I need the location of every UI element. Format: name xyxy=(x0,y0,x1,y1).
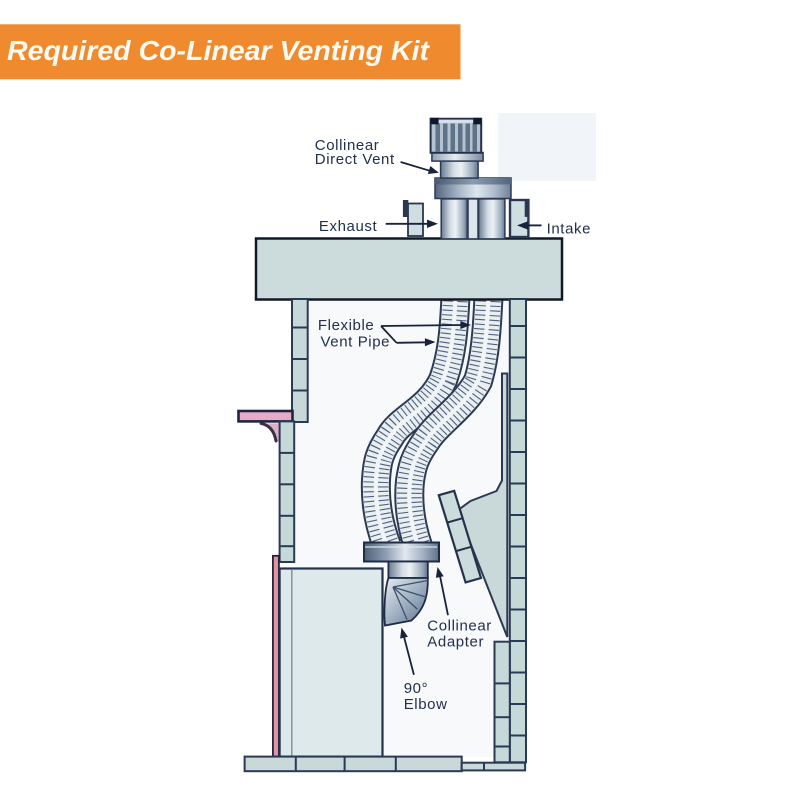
svg-text:Adapter: Adapter xyxy=(427,634,484,651)
svg-text:Collinear: Collinear xyxy=(427,618,492,635)
svg-text:Direct Vent: Direct Vent xyxy=(315,151,395,168)
svg-text:Required Co-Linear Venting Kit: Required Co-Linear Venting Kit xyxy=(7,35,431,66)
svg-text:90°: 90° xyxy=(404,680,428,697)
svg-text:Exhaust: Exhaust xyxy=(319,218,378,235)
svg-text:Flexible: Flexible xyxy=(318,317,375,334)
svg-text:Intake: Intake xyxy=(547,221,591,238)
svg-text:Vent Pipe: Vent Pipe xyxy=(321,334,391,351)
svg-text:Elbow: Elbow xyxy=(404,696,448,713)
